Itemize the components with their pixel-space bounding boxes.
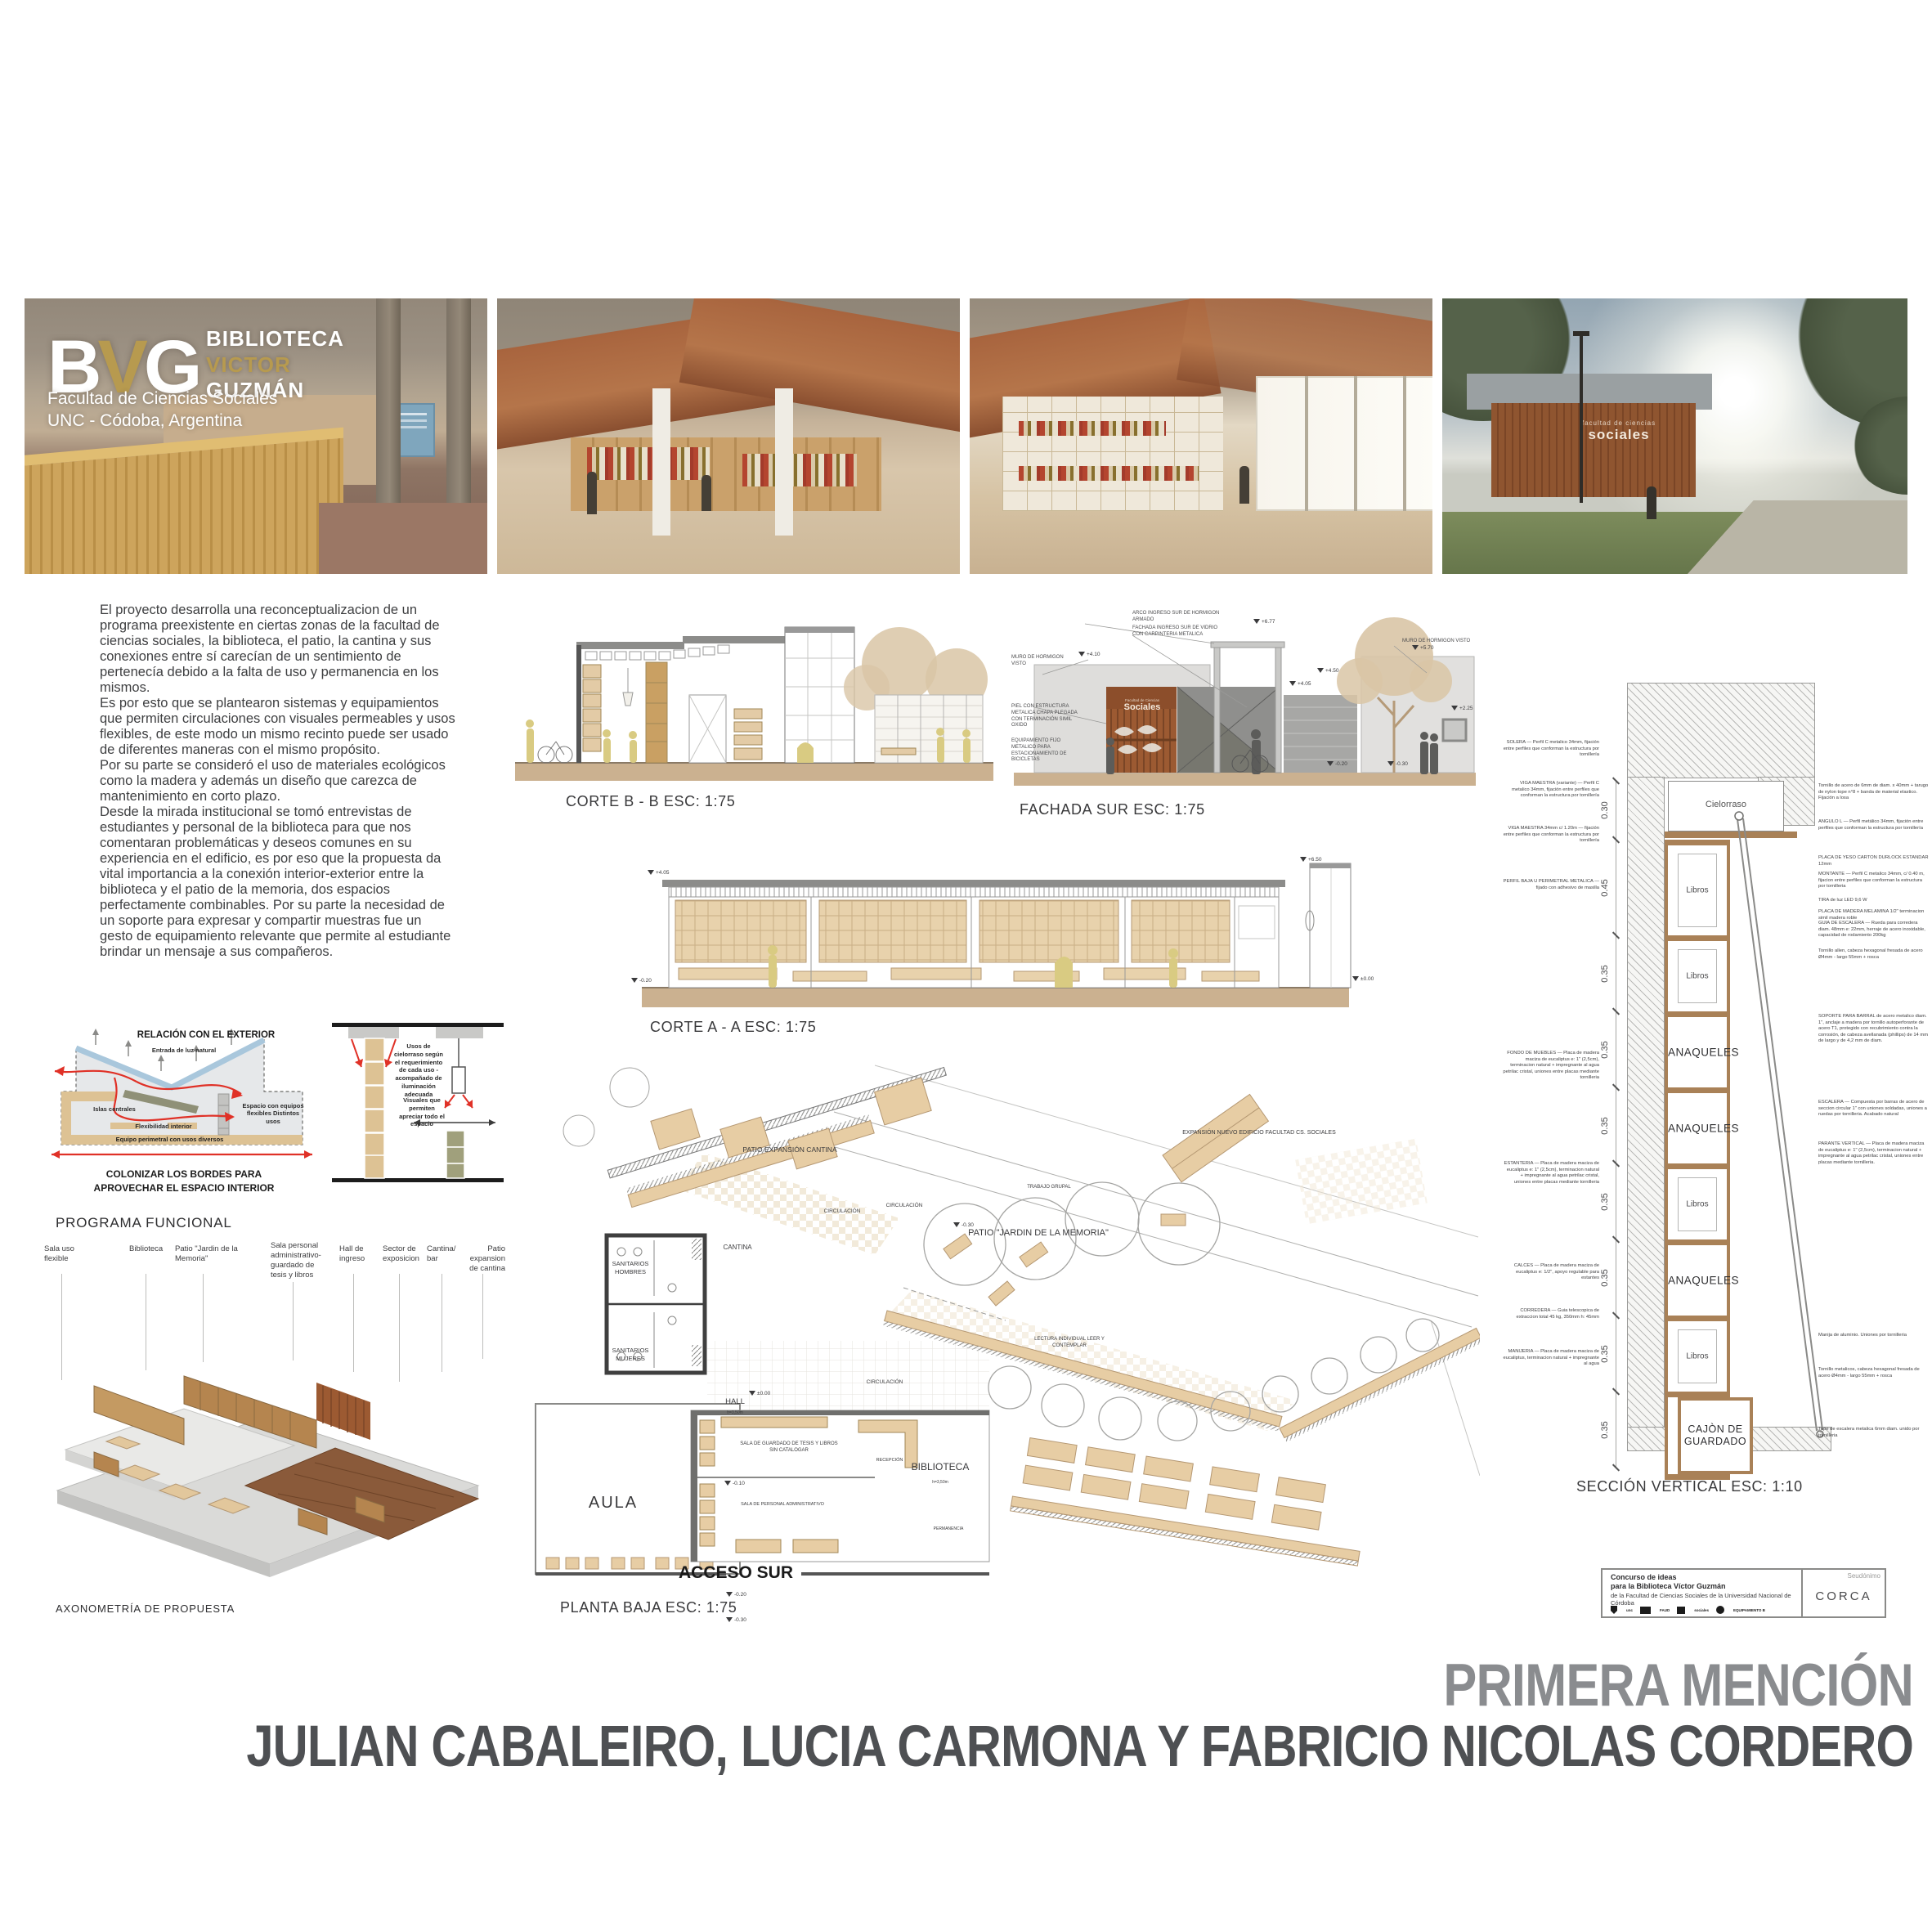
hall-text: HALL bbox=[725, 1397, 745, 1406]
level-mark: +6.77 bbox=[1253, 619, 1275, 625]
plan-label-recepcion: RECEPCIÓN bbox=[865, 1458, 914, 1464]
label-equipo-perimetral: Equipo perimetral con usos diversos bbox=[94, 1136, 245, 1143]
fachada-ann-piel: PIEL CON ESTRUCTURA METALICA CHAPA PLEGA… bbox=[1011, 704, 1081, 729]
seudonimo-code: CORCA bbox=[1803, 1589, 1885, 1603]
biblioteca-text: BIBLIOTECA bbox=[912, 1461, 970, 1473]
sociales-logo bbox=[1677, 1607, 1685, 1614]
seccion-annotation-right-6: GUIA DE ESCALERA — Rueda para corredera … bbox=[1818, 921, 1930, 939]
person-figure bbox=[587, 472, 597, 514]
titleblock-line2: para la Biblioteca Víctor Guzmán bbox=[1611, 1582, 1795, 1591]
render-interior-reading bbox=[970, 298, 1432, 574]
shelf-board bbox=[1668, 1392, 1727, 1397]
plan-label-permanencia: PERMANENCIA bbox=[922, 1526, 975, 1532]
seccion-caption: SECCIÓN VERTICAL ESC: 1:10 bbox=[1576, 1478, 1803, 1495]
fachada-sign-main: Sociales bbox=[1116, 702, 1168, 712]
fachada-linework bbox=[1010, 609, 1482, 793]
unc-logo bbox=[1611, 1606, 1617, 1614]
logo-line-victor: VICTOR bbox=[206, 352, 344, 379]
shelf-label: Libros bbox=[1668, 972, 1727, 981]
shelf-1: Libros bbox=[1668, 941, 1727, 1011]
plan-label-patio-cantina: PATIO EXPANSIÓN CANTINA bbox=[724, 1145, 855, 1154]
level-mark: -0.20 bbox=[726, 1592, 746, 1598]
seccion-annotation-left-5: ESTANTERIA — Placa de madera maciza de e… bbox=[1503, 1161, 1599, 1186]
fachada-ann-muro-derecha: MURO DE HORMIGON VISTO bbox=[1402, 639, 1472, 645]
shelf-3: ANAQUELES bbox=[1668, 1093, 1727, 1163]
white-column bbox=[652, 388, 670, 536]
logo-subtitle: Facultad de Ciencias Sociales UNC - Códo… bbox=[47, 388, 277, 433]
drawing-corte-a: +4.05 -0.20 +6.50 ±0.00 bbox=[630, 857, 1365, 1020]
book-spines bbox=[1019, 421, 1166, 436]
level-mark: +4.50 bbox=[1317, 668, 1338, 674]
programa-item-biblioteca: Biblioteca bbox=[129, 1244, 178, 1254]
shelf-board bbox=[1668, 1239, 1727, 1245]
plan-label-cantina: CANTINA bbox=[713, 1244, 762, 1252]
programa-item-sala-personal: Sala personal administrativo- guardado d… bbox=[271, 1241, 321, 1280]
plan-label-trabajo-grupal: TRABAJO GRUPAL bbox=[1012, 1185, 1086, 1191]
faud-logo-label: FAUD bbox=[1660, 1608, 1670, 1612]
bookshelf-wall bbox=[1002, 397, 1223, 511]
programa-item-patio-cantina: Patio expansion de cantina bbox=[463, 1244, 505, 1274]
seccion-losa-superior bbox=[1627, 683, 1815, 778]
plan-label-aula: AULA bbox=[580, 1492, 646, 1513]
seccion-annotation-right-11: Manija de aluminio. Uniones por tornille… bbox=[1818, 1333, 1930, 1339]
level-mark: ±0.00 bbox=[749, 1391, 770, 1396]
level-mark: ±0.00 bbox=[1352, 976, 1374, 982]
seccion-annotation-left-7: CORREDERA — Guia telescopica de extracci… bbox=[1503, 1308, 1599, 1320]
shelf-stack: LibrosLibrosANAQUELESANAQUELESLibrosANAQ… bbox=[1665, 840, 1730, 1480]
title-block-right: Seudónimo CORCA bbox=[1801, 1570, 1885, 1616]
seccion-annotation-left-3: PERFIL BAJA U PERIMETRAL METALICA — fija… bbox=[1503, 879, 1599, 891]
level-mark: -0.30 bbox=[953, 1222, 974, 1228]
programa-item-sala-flexible: Sala uso flexible bbox=[44, 1244, 95, 1264]
seccion-annotation-left-6: CALCES — Placa de madera maciza de eucal… bbox=[1503, 1263, 1599, 1282]
diagram-exterior-caption: COLONIZAR LOS BORDES PARA APROVECHAR EL … bbox=[78, 1168, 290, 1196]
plan-label-patio-memoria: PATIO "JARDIN DE LA MEMORIA" bbox=[965, 1227, 1112, 1239]
shelf-label: Libros bbox=[1668, 886, 1727, 895]
corte-a-caption: CORTE A - A ESC: 1:75 bbox=[650, 1019, 816, 1036]
shelf-board bbox=[1668, 1163, 1727, 1169]
label-visuales: Visuales que permiten apreciar todo el e… bbox=[397, 1096, 446, 1128]
window-mullion bbox=[1403, 376, 1406, 511]
level-mark: +2.25 bbox=[1451, 706, 1473, 711]
shelf-label: ANAQUELES bbox=[1668, 1275, 1727, 1287]
shelf-label: ANAQUELES bbox=[1668, 1123, 1727, 1135]
plan-label-sanitarios-mujeres: SANITARIOS MUJERES bbox=[602, 1347, 659, 1363]
award-authors: JULIAN CABALEIRO, LUCIA CARMONA Y FABRIC… bbox=[246, 1714, 1913, 1780]
shelf-board bbox=[1668, 1011, 1727, 1017]
plan-label-circulacion: CIRCULACIÓN bbox=[858, 1379, 911, 1386]
level-mark: -0.20 bbox=[1327, 761, 1347, 767]
seccion-annotations-left: SOLERA — Perfil C metalico 34mm, fijació… bbox=[1503, 0, 1599, 1932]
drawing-fachada-sur: Facultad de Ciencias Sociales MURO DE HO… bbox=[1010, 609, 1482, 793]
level-mark: +4.05 bbox=[1289, 681, 1311, 687]
plan-label-circulacion: CIRCULACIÓN bbox=[878, 1203, 930, 1209]
seccion-annotation-right-3: MONTANTE — Perfil C metalico 34mm, c/ 0.… bbox=[1818, 872, 1930, 890]
render-interior-library bbox=[497, 298, 960, 574]
logo-line-biblioteca: BIBLIOTECA bbox=[206, 326, 344, 352]
level-mark: -0.30 bbox=[726, 1617, 746, 1623]
level-mark: +6.50 bbox=[1300, 857, 1321, 863]
drawing-planta-baja: PATIO EXPANSIÓN CANTINA CANTINA SANITARI… bbox=[531, 1051, 1480, 1615]
fachada-ann-arco: ARCO INGRESO SUR DE HORMIGON ARMADO bbox=[1132, 611, 1239, 624]
sociales-logo-label: sociales bbox=[1694, 1608, 1709, 1612]
seccion-annotation-right-8: SOPORTE PARA BARRAL de acero metalico di… bbox=[1818, 1014, 1930, 1045]
plan-label-sala-personal: SALA DE PERSONAL ADMINISTRATIVO bbox=[737, 1502, 827, 1508]
seccion-annotation-right-12: Tornillo metalicos, cabeza hexagonal fre… bbox=[1818, 1367, 1930, 1379]
intro-paragraph-4: Desde la mirada institucional se tomó en… bbox=[100, 805, 456, 960]
title-block-left: Concurso de ideas para la Biblioteca Víc… bbox=[1603, 1570, 1801, 1616]
equipamiento-logo bbox=[1716, 1606, 1724, 1614]
fachada-ann-muro: MURO DE HORMIGON VISTO bbox=[1011, 655, 1077, 668]
book-spines bbox=[587, 447, 710, 480]
equipamiento-logo-label: EQUIPAMIENTO B bbox=[1733, 1608, 1765, 1612]
book-spines bbox=[1019, 466, 1199, 481]
shelf-2: ANAQUELES bbox=[1668, 1017, 1727, 1087]
plan-label-circulacion: CIRCULACIÓN bbox=[816, 1208, 868, 1215]
shelf-4: Libros bbox=[1668, 1169, 1727, 1239]
diagram-exterior-title: RELACIÓN CON EL EXTERIOR bbox=[120, 1030, 292, 1040]
seccion-annotations-right: Tornillo de acero de 6mm de diam. x 40mm… bbox=[1818, 0, 1930, 1932]
person-figure bbox=[1239, 466, 1249, 504]
unc-logo-label: unc bbox=[1626, 1608, 1633, 1612]
fachada-sign-top: Facultad de Ciencias bbox=[1116, 698, 1168, 702]
floor bbox=[319, 503, 487, 574]
fachada-ann-vidrio: FACHADA INGRESO SUR DE VIDRIO CON CARPIN… bbox=[1132, 625, 1226, 639]
cielorraso-label: Cielorraso bbox=[1669, 800, 1783, 809]
logo-unc: UNC - Códoba, Argentina bbox=[47, 410, 277, 433]
seccion-placa-madera bbox=[1665, 832, 1797, 838]
institution-logos: unc FAUD sociales EQUIPAMIENTO B bbox=[1611, 1606, 1765, 1614]
corte-a-linework bbox=[630, 857, 1365, 1020]
drawing-corte-b bbox=[515, 617, 993, 791]
project-description: El proyecto desarrolla una reconceptuali… bbox=[100, 603, 456, 960]
shelf-5: ANAQUELES bbox=[1668, 1245, 1727, 1316]
plan-label-biblioteca: BIBLIOTECAh=3,50m bbox=[903, 1461, 977, 1486]
shelf-label: Libros bbox=[1668, 1352, 1727, 1361]
seccion-annotation-right-0: Tornillo de acero de 6mm de diam. x 40mm… bbox=[1818, 783, 1930, 802]
wood-ceiling bbox=[679, 298, 960, 442]
biblioteca-height: h=3,50m bbox=[932, 1480, 948, 1485]
seudonimo-label: Seudónimo bbox=[1848, 1572, 1880, 1580]
seccion-annotation-right-7: Tornillo allen, cabeza hexagonal fresada… bbox=[1818, 948, 1930, 961]
seccion-annotation-right-2: PLACA DE YESO CARTON DURLOCK ESTANDAR 12… bbox=[1818, 855, 1930, 867]
diagram-relacion-exterior: RELACIÓN CON EL EXTERIOR Entrada de luz … bbox=[45, 1014, 319, 1202]
person-figure bbox=[1647, 486, 1656, 519]
plan-label-sanitarios-hombres: SANITARIOS HOMBRES bbox=[602, 1260, 659, 1276]
shelf-board bbox=[1668, 1087, 1727, 1093]
plan-label-hall: HALLh=3,50m bbox=[715, 1397, 755, 1418]
programa-item-hall: Hall de ingreso bbox=[339, 1244, 374, 1264]
diagram-cielorraso: Usos de cielorraso según el requerimient… bbox=[325, 1016, 509, 1192]
shelf-0: Libros bbox=[1668, 845, 1727, 935]
faud-logo bbox=[1640, 1607, 1651, 1614]
programa-item-exposicion: Sector de exposicion bbox=[383, 1244, 420, 1264]
seccion-annotation-right-9: ESCALERA — Compuesta por barras de acero… bbox=[1818, 1100, 1930, 1118]
titleblock-line1: Concurso de ideas bbox=[1611, 1573, 1795, 1582]
window-mullion bbox=[1305, 376, 1308, 511]
intro-paragraph-1: El proyecto desarrolla una reconceptuali… bbox=[100, 603, 456, 696]
seccion-annotation-left-2: VIGA MAESTRA 34mm c/ 1.20m — fijación en… bbox=[1503, 826, 1599, 845]
shelf-board bbox=[1668, 935, 1727, 941]
planta-caption: PLANTA BAJA ESC: 1:75 bbox=[560, 1599, 737, 1616]
window-mullion bbox=[1354, 376, 1357, 511]
seccion-cielorraso: Cielorraso bbox=[1668, 781, 1784, 832]
person-figure bbox=[702, 475, 711, 511]
seccion-annotation-right-4: TIRA de luz LED 9,6 W bbox=[1818, 898, 1930, 904]
shelf-label: ANAQUELES bbox=[1668, 1047, 1727, 1059]
seccion-annotation-right-10: PARANTE VERTICAL — Placa de madera maciz… bbox=[1818, 1141, 1930, 1166]
level-mark: +4.05 bbox=[648, 870, 669, 876]
programa-title: PROGRAMA FUNCIONAL bbox=[56, 1215, 232, 1231]
corte-b-caption: CORTE B - B ESC: 1:75 bbox=[566, 793, 735, 810]
axonometria-caption: AXONOMETRÍA DE PROPUESTA bbox=[56, 1603, 235, 1615]
seccion-muro bbox=[1627, 777, 1665, 1449]
shelf-board bbox=[1668, 1316, 1727, 1321]
logo-facultad: Facultad de Ciencias Sociales bbox=[47, 388, 277, 410]
render-strip: BVG BIBLIOTECA VICTOR GUZMÁN Facultad de… bbox=[25, 298, 1907, 574]
seccion-annotation-right-5: PLACA DE MADERA MELAMINA 1/2" terminacio… bbox=[1818, 909, 1930, 921]
label-usos-cielorraso: Usos de cielorraso según el requerimient… bbox=[392, 1042, 445, 1098]
book-spines bbox=[742, 454, 857, 486]
label-islas-centrales: Islas centrales bbox=[90, 1105, 139, 1113]
shelf-6: Libros bbox=[1668, 1321, 1727, 1392]
plan-label-acceso-sur: ACCESO SUR bbox=[670, 1562, 801, 1584]
plan-label-lectura: LECTURA INDIVIDUAL LEER Y CONTEMPLAR bbox=[1029, 1337, 1110, 1350]
plan-label-expansion: EXPANSIÓN NUEVO EDIFICIO FACULTAD CS. SO… bbox=[1153, 1129, 1365, 1136]
white-column bbox=[775, 388, 793, 536]
render-interior-reception: BVG BIBLIOTECA VICTOR GUZMÁN Facultad de… bbox=[25, 298, 487, 574]
level-mark: -0.20 bbox=[631, 978, 652, 984]
label-entrada-luz: Entrada de luz natural bbox=[147, 1047, 221, 1054]
fachada-caption: FACHADA SUR ESC: 1:75 bbox=[1020, 801, 1205, 818]
intro-paragraph-2: Es por esto que se plantearon sistemas y… bbox=[100, 696, 456, 758]
award-title: PRIMERA MENCIÓN bbox=[1444, 1652, 1913, 1719]
fachada-sign: Facultad de Ciencias Sociales bbox=[1116, 698, 1168, 712]
seccion-annotation-left-4: FONDO DE MUEBLES — Placa de madera maciz… bbox=[1503, 1051, 1599, 1082]
level-mark: -0.10 bbox=[724, 1481, 745, 1486]
seccion-annotation-right-13: Tope de escalera metalica 6mm diam. unid… bbox=[1818, 1427, 1930, 1439]
seccion-annotation-left-0: SOLERA — Perfil C metalico 34mm, fijació… bbox=[1503, 740, 1599, 759]
label-espacio-flexible: Espacio con equipos flexibles Distintos … bbox=[241, 1102, 305, 1125]
fachada-ann-equipamiento: EQUIPAMIENTO FIJO METALICO PARA ESTACION… bbox=[1011, 738, 1081, 764]
seccion-annotation-right-1: ANGULO L — Perfil metálico 34mm, fijació… bbox=[1818, 819, 1930, 832]
seccion-annotation-left-1: VIGA MAESTRA (variante) — Perfil C metal… bbox=[1503, 781, 1599, 800]
level-mark: +5.70 bbox=[1412, 645, 1433, 651]
level-mark: +4.10 bbox=[1078, 652, 1100, 657]
level-mark: -0.30 bbox=[1387, 761, 1408, 767]
plan-label-sala-guardado: SALA DE GUARDADO DE TESIS Y LIBROS SIN C… bbox=[740, 1441, 838, 1455]
programa-item-cantina: Cantina/ bar bbox=[427, 1244, 459, 1264]
seccion-annotation-left-8: MANIJERIA — Placa de madera maciza de eu… bbox=[1503, 1349, 1599, 1368]
shelf-label: Libros bbox=[1668, 1200, 1727, 1209]
competition-board: BVG BIBLIOTECA VICTOR GUZMÁN Facultad de… bbox=[0, 0, 1932, 1932]
shelf-board bbox=[1668, 840, 1727, 845]
axonometric-drawing bbox=[45, 1280, 491, 1594]
shelf-7: CAJÒN DE GUARDADO bbox=[1678, 1397, 1753, 1474]
programa-item-patio-jardin: Patio "Jardin de la Memoria" bbox=[175, 1244, 267, 1264]
shelf-label: CAJÒN DE GUARDADO bbox=[1681, 1423, 1750, 1448]
label-flexibilidad: Flexibilidad interior bbox=[135, 1123, 192, 1130]
hall-height: h=3,50m bbox=[727, 1410, 743, 1415]
wood-reception-desk bbox=[25, 428, 343, 574]
title-block: Concurso de ideas para la Biblioteca Víc… bbox=[1601, 1568, 1886, 1618]
intro-paragraph-3: Por su parte se consideró el uso de mate… bbox=[100, 758, 456, 805]
